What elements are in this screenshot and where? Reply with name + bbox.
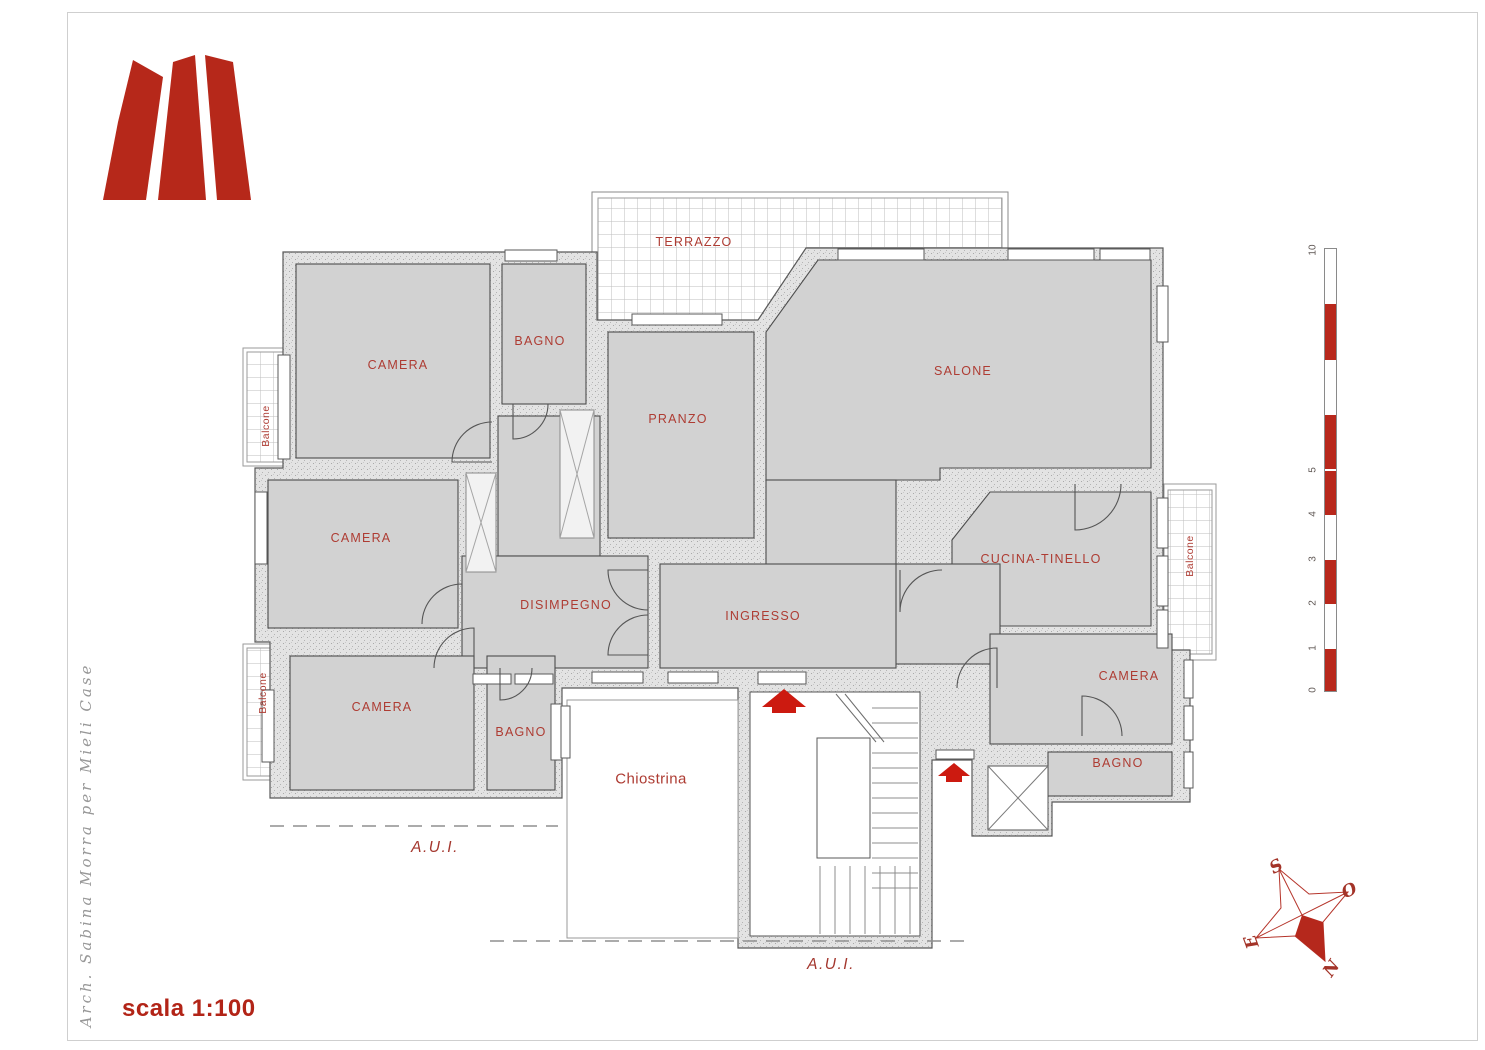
room-camera-mid (268, 480, 458, 628)
label-chiostrina: Chiostrina (615, 771, 687, 788)
service-entrance-arrow-icon (938, 763, 970, 782)
label-balcone-right: Balcone (1184, 535, 1196, 576)
label-bagno-br: BAGNO (1092, 756, 1143, 770)
room-pranzo (608, 332, 754, 538)
compass-letter-s: S (1266, 855, 1287, 878)
label-disimpegno: DISIMPEGNO (520, 598, 612, 612)
label-camera-br: CAMERA (1099, 669, 1160, 683)
floor-plan-drawing: S O E N (0, 0, 1485, 1050)
label-balcone-left-top: Balcone (260, 405, 272, 446)
scale-tick-0: 0 (1308, 687, 1319, 693)
label-camera-mid: CAMERA (331, 531, 392, 545)
scale-tick-4: 4 (1308, 511, 1319, 517)
architect-credit: Arch. Sabina Morra per Mieli Case (77, 663, 95, 1028)
label-bagno-bl: BAGNO (495, 725, 546, 739)
label-ingresso: INGRESSO (725, 609, 801, 623)
scale-label: scala 1:100 (122, 995, 256, 1023)
label-terrazzo: TERRAZZO (656, 235, 733, 249)
compass-north-needle (1295, 915, 1325, 961)
label-camera-tl: CAMERA (368, 358, 429, 372)
scale-tick-10: 10 (1308, 244, 1319, 255)
label-salone: SALONE (934, 364, 992, 378)
label-aui-left: A.U.I. (411, 839, 459, 857)
scale-tick-2: 2 (1308, 600, 1319, 606)
corridor-right (895, 564, 1000, 664)
scale-tick-5: 5 (1308, 467, 1319, 473)
floor-plan-sheet: S O E N TERRAZZO CAMERA BAGNO PRANZO SAL… (0, 0, 1485, 1050)
label-camera-bl: CAMERA (352, 700, 413, 714)
room-camera-br (990, 634, 1172, 744)
compass-letter-e: E (1240, 931, 1264, 952)
scale-tick-1: 1 (1308, 645, 1319, 651)
graphic-scale-bar (1324, 248, 1337, 692)
logo-m-icon (103, 55, 251, 200)
hall-center (766, 480, 896, 570)
room-camera-bl (290, 656, 474, 790)
label-pranzo: PRANZO (648, 412, 707, 426)
label-bagno-top: BAGNO (514, 334, 565, 348)
chiostrina-court (567, 700, 738, 938)
compass-rose: S O E N (1240, 855, 1361, 981)
elevator-shaft (988, 766, 1048, 830)
label-cucina: CUCINA-TINELLO (981, 552, 1102, 566)
label-balcone-left-bottom: Balcone (257, 672, 269, 713)
room-disimpegno (462, 556, 648, 668)
scale-tick-3: 3 (1308, 556, 1319, 562)
stairwell (750, 692, 920, 936)
label-aui-bottom: A.U.I. (807, 956, 855, 974)
